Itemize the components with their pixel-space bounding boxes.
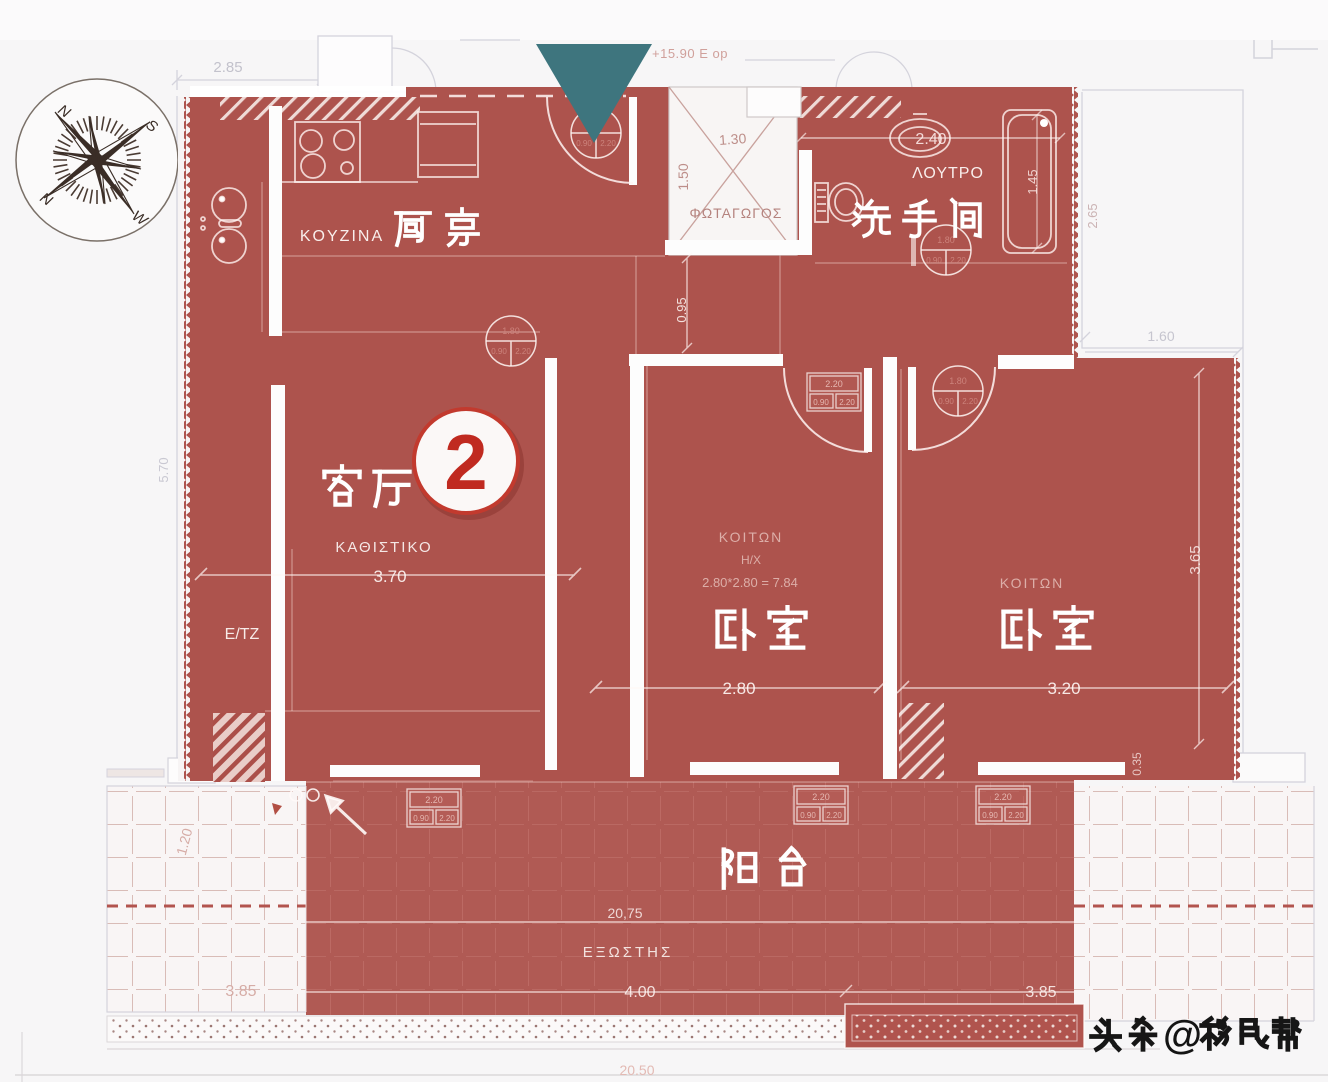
svg-text:3.65: 3.65	[1187, 545, 1204, 574]
svg-text:4.00: 4.00	[624, 984, 655, 1001]
svg-text:ΕΞΩΣΤΗΣ: ΕΞΩΣΤΗΣ	[583, 944, 674, 961]
svg-text:3.70: 3.70	[373, 567, 406, 586]
svg-text:1.60: 1.60	[1147, 328, 1174, 344]
svg-text:ΚΑΘΙΣΤΙΚΟ: ΚΑΘΙΣΤΙΚΟ	[335, 539, 432, 556]
svg-text:0.35: 0.35	[1130, 752, 1144, 776]
svg-text:1.30: 1.30	[719, 130, 748, 148]
svg-text:2.85: 2.85	[213, 59, 242, 76]
svg-text:2: 2	[444, 418, 487, 506]
svg-text:ΚΟΙΤΩΝ: ΚΟΙΤΩΝ	[719, 529, 784, 545]
svg-text:1.45: 1.45	[1025, 169, 1040, 194]
svg-text:3.20: 3.20	[1047, 679, 1080, 698]
svg-text:2.65: 2.65	[1085, 203, 1100, 228]
svg-text:2.40: 2.40	[915, 131, 946, 148]
svg-text:20,75: 20,75	[607, 905, 642, 921]
svg-text:+15.90 E op: +15.90 E op	[652, 46, 728, 61]
svg-text:1.50: 1.50	[675, 163, 691, 190]
svg-text:@: @	[1163, 1013, 1202, 1057]
svg-text:ΚΟΙΤΩΝ: ΚΟΙΤΩΝ	[1000, 575, 1065, 591]
svg-text:ΛΟΥΤΡΟ: ΛΟΥΤΡΟ	[912, 165, 984, 182]
svg-text:20.50: 20.50	[619, 1062, 654, 1078]
svg-text:E/TZ: E/TZ	[225, 626, 260, 643]
svg-text:0.95: 0.95	[674, 297, 689, 322]
svg-text:2.80*2.80 = 7.84: 2.80*2.80 = 7.84	[702, 575, 798, 590]
svg-text:KOYZINA: KOYZINA	[300, 228, 384, 245]
svg-text:H/X: H/X	[741, 553, 761, 567]
svg-text:5.70: 5.70	[156, 457, 171, 482]
svg-text:2.80: 2.80	[722, 679, 755, 698]
svg-text:ΦΩΤΑΓΩΓΟΣ: ΦΩΤΑΓΩΓΟΣ	[690, 205, 783, 221]
svg-text:3.85: 3.85	[225, 983, 256, 1000]
svg-text:3.85: 3.85	[1025, 984, 1056, 1001]
